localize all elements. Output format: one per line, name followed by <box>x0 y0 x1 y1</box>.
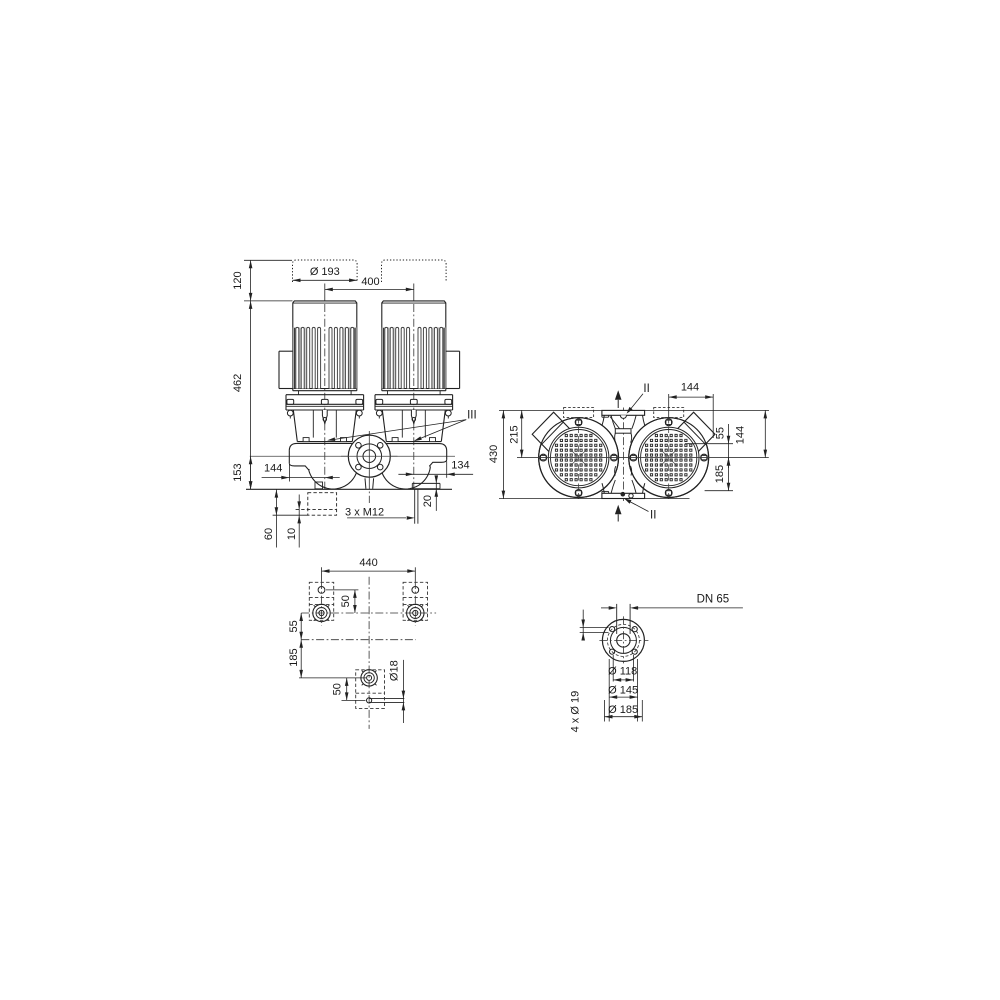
svg-text:Ø 118: Ø 118 <box>608 665 637 677</box>
svg-text:462: 462 <box>232 374 244 392</box>
svg-text:II: II <box>643 383 649 395</box>
svg-text:55: 55 <box>288 620 300 632</box>
svg-text:10: 10 <box>286 528 298 540</box>
svg-text:Ø 193: Ø 193 <box>310 266 340 278</box>
svg-text:430: 430 <box>488 445 500 463</box>
svg-text:215: 215 <box>508 425 520 443</box>
svg-text:120: 120 <box>232 271 244 289</box>
svg-text:153: 153 <box>232 463 244 481</box>
svg-text:III: III <box>467 410 477 422</box>
svg-text:55: 55 <box>714 427 726 439</box>
svg-text:50: 50 <box>340 595 352 607</box>
svg-text:400: 400 <box>361 276 379 288</box>
svg-text:4 x Ø 19: 4 x Ø 19 <box>570 691 582 733</box>
svg-text:Ø18: Ø18 <box>389 660 401 681</box>
svg-text:134: 134 <box>451 460 469 472</box>
svg-text:Ø 145: Ø 145 <box>608 684 638 696</box>
svg-text:144: 144 <box>681 382 699 394</box>
svg-text:Ø 185: Ø 185 <box>608 704 638 716</box>
svg-text:II: II <box>650 510 656 522</box>
svg-text:440: 440 <box>359 557 377 569</box>
svg-text:3 x M12: 3 x M12 <box>345 507 384 519</box>
svg-text:185: 185 <box>714 465 726 483</box>
svg-text:185: 185 <box>288 648 300 666</box>
svg-text:DN 65: DN 65 <box>697 594 730 606</box>
svg-text:20: 20 <box>422 495 434 507</box>
svg-text:144: 144 <box>735 426 747 444</box>
svg-text:60: 60 <box>263 528 275 540</box>
svg-text:144: 144 <box>264 463 282 475</box>
svg-text:50: 50 <box>331 683 343 695</box>
